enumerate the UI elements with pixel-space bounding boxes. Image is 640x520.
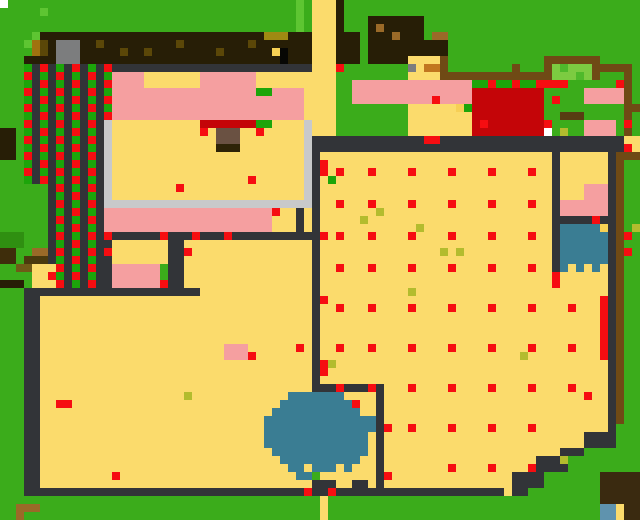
map-canvas[interactable] [0, 0, 640, 520]
game-screen [0, 0, 640, 520]
